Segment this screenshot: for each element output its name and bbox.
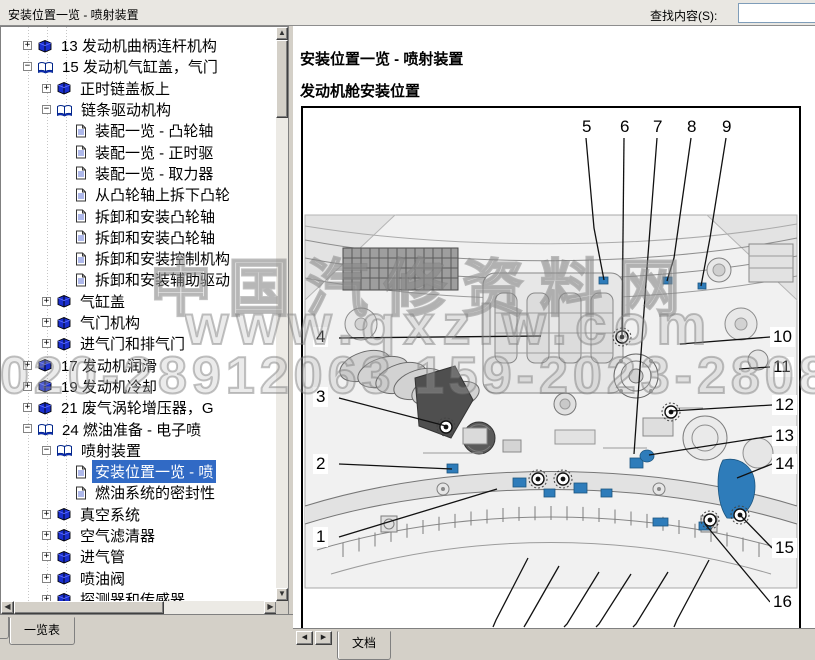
- collapse-minus-icon[interactable]: −: [42, 446, 51, 455]
- expand-plus-icon[interactable]: +: [42, 595, 51, 601]
- tree-item-label[interactable]: 装配一览 - 正时驱: [92, 141, 216, 164]
- tree-item[interactable]: 从凸轮轴上拆下凸轮: [1, 184, 277, 205]
- tree-item-label[interactable]: 拆卸和安装凸轮轴: [92, 226, 218, 249]
- scroll-left-icon[interactable]: ◀: [1, 601, 14, 614]
- book-open-icon: [37, 60, 54, 74]
- horizontal-scrollbar[interactable]: ◀ ▶: [1, 601, 277, 614]
- callout-7: 7: [650, 117, 665, 137]
- scroll-up-icon[interactable]: ▲: [276, 27, 288, 40]
- expand-plus-icon[interactable]: +: [23, 403, 32, 412]
- expand-plus-icon[interactable]: +: [23, 361, 32, 370]
- tree-item[interactable]: 装配一览 - 凸轮轴: [1, 120, 277, 141]
- tree-item[interactable]: +探测器和传感器: [1, 589, 277, 601]
- collapse-minus-icon[interactable]: −: [23, 62, 32, 71]
- expand-plus-icon[interactable]: +: [42, 339, 51, 348]
- expand-plus-icon[interactable]: +: [23, 382, 32, 391]
- book-closed-icon: [37, 379, 53, 393]
- tree-item[interactable]: +21 废气涡轮增压器，G: [1, 397, 277, 418]
- toc-tree[interactable]: +13 发动机曲柄连杆机构−15 发动机气缸盖，气门+正时链盖板上−链条驱动机构…: [1, 27, 277, 601]
- book-open-icon: [56, 103, 73, 117]
- tree-item-label[interactable]: 气缸盖: [77, 290, 128, 313]
- book-closed-icon: [56, 507, 72, 521]
- scrollbar-corner: [276, 601, 288, 614]
- expand-plus-icon[interactable]: +: [42, 318, 51, 327]
- tree-item[interactable]: 燃油系统的密封性: [1, 482, 277, 503]
- find-label: 查找内容(S):: [650, 7, 717, 24]
- tree-item-label[interactable]: 拆卸和安装控制机构: [92, 247, 233, 270]
- book-open-icon: [56, 443, 73, 457]
- tree-item[interactable]: +气门机构: [1, 312, 277, 333]
- scrollbar-thumb[interactable]: [14, 601, 164, 614]
- tree-item-label[interactable]: 探测器和传感器: [77, 588, 188, 601]
- tab-document[interactable]: 文档: [337, 631, 391, 660]
- book-closed-icon: [37, 401, 53, 415]
- tree-item[interactable]: +进气管: [1, 546, 277, 567]
- tree-item-label[interactable]: 15 发动机气缸盖，气门: [59, 55, 221, 78]
- callout-11: 11: [770, 357, 794, 377]
- tree-item[interactable]: −链条驱动机构: [1, 99, 277, 120]
- document-tab-bar: ◀ ▶ 文档: [293, 628, 815, 645]
- vertical-scrollbar[interactable]: ▲ ▼: [276, 27, 288, 601]
- tree-item-label[interactable]: 链条驱动机构: [78, 98, 174, 121]
- tree-item[interactable]: +气缸盖: [1, 291, 277, 312]
- page-icon: [75, 252, 87, 266]
- tree-item[interactable]: +17 发动机润滑: [1, 354, 277, 375]
- tree-item-label[interactable]: 空气滤清器: [77, 524, 158, 547]
- tab-document-label: 文档: [352, 636, 376, 650]
- callout-13: 13: [772, 426, 797, 446]
- tree-item-label[interactable]: 19 发动机冷却: [58, 375, 160, 398]
- callout-8: 8: [684, 117, 699, 137]
- tree-item[interactable]: +真空系统: [1, 504, 277, 525]
- collapse-minus-icon[interactable]: −: [23, 424, 32, 433]
- expand-plus-icon[interactable]: +: [42, 510, 51, 519]
- tab-overview-label: 一览表: [24, 623, 60, 637]
- tree-item-label[interactable]: 13 发动机曲柄连杆机构: [58, 34, 220, 57]
- engine-bay-figure: 12345678910111213141516: [301, 106, 801, 628]
- document-pane: 安装位置一览 - 喷射装置 发动机舱安装位置: [293, 26, 815, 628]
- book-closed-icon: [56, 571, 72, 585]
- tree-item-label[interactable]: 燃油系统的密封性: [92, 481, 218, 504]
- tab-overview[interactable]: 一览表: [9, 617, 75, 645]
- expand-plus-icon[interactable]: +: [42, 297, 51, 306]
- book-closed-icon: [56, 528, 72, 542]
- page-icon: [75, 145, 87, 159]
- callout-5: 5: [579, 117, 594, 137]
- page-icon: [75, 465, 87, 479]
- tree-item[interactable]: 拆卸和安装凸轮轴: [1, 227, 277, 248]
- tab-scroll-right-icon[interactable]: ▶: [315, 631, 332, 645]
- callout-14: 14: [772, 454, 797, 474]
- tree-item[interactable]: +13 发动机曲柄连杆机构: [1, 35, 277, 56]
- book-closed-icon: [56, 316, 72, 330]
- tree-item[interactable]: 装配一览 - 取力器: [1, 163, 277, 184]
- tree-item-label[interactable]: 真空系统: [77, 503, 143, 526]
- tree-item[interactable]: +喷油阀: [1, 567, 277, 588]
- book-closed-icon: [56, 592, 72, 601]
- scroll-down-icon[interactable]: ▼: [276, 588, 288, 601]
- toc-pane: +13 发动机曲柄连杆机构−15 发动机气缸盖，气门+正时链盖板上−链条驱动机构…: [0, 26, 289, 614]
- book-closed-icon: [56, 550, 72, 564]
- page-icon: [75, 166, 87, 180]
- tree-item-label[interactable]: 喷油阀: [77, 567, 128, 590]
- callout-12: 12: [772, 395, 797, 415]
- expand-plus-icon[interactable]: +: [42, 531, 51, 540]
- book-closed-icon: [37, 358, 53, 372]
- scrollbar-thumb[interactable]: [276, 40, 288, 118]
- tree-item-label[interactable]: 喷射装置: [78, 439, 144, 462]
- tree-item[interactable]: −喷射装置: [1, 440, 277, 461]
- page-title: 安装位置一览 - 喷射装置: [300, 48, 463, 69]
- collapse-minus-icon[interactable]: −: [42, 105, 51, 114]
- book-closed-icon: [56, 81, 72, 95]
- page-icon: [75, 188, 87, 202]
- page-icon: [75, 209, 87, 223]
- find-input[interactable]: [738, 3, 815, 23]
- tree-item-label[interactable]: 24 燃油准备 - 电子喷: [59, 418, 204, 441]
- callout-15: 15: [772, 538, 797, 558]
- window-title: 安装位置一览 - 喷射装置: [8, 6, 139, 23]
- section-title: 发动机舱安装位置: [300, 80, 420, 101]
- tree-item[interactable]: −24 燃油准备 - 电子喷: [1, 418, 277, 439]
- book-closed-icon: [37, 39, 53, 53]
- sidebar-tab-bar: 一览表: [0, 614, 293, 645]
- expand-plus-icon[interactable]: +: [42, 552, 51, 561]
- tree-item-label[interactable]: 从凸轮轴上拆下凸轮: [92, 183, 233, 206]
- page-icon: [75, 273, 87, 287]
- tree-item-label[interactable]: 拆卸和安装辅助驱动: [92, 268, 233, 291]
- callout-2: 2: [313, 454, 328, 474]
- tab-scroll-left-icon[interactable]: ◀: [296, 631, 313, 645]
- tree-item-label[interactable]: 安装位置一览 - 喷: [92, 460, 216, 483]
- expand-plus-icon[interactable]: +: [23, 41, 32, 50]
- tree-item-label[interactable]: 气门机构: [77, 311, 143, 334]
- tree-item[interactable]: 拆卸和安装凸轮轴: [1, 205, 277, 226]
- tree-item[interactable]: −15 发动机气缸盖，气门: [1, 56, 277, 77]
- engine-illustration: [303, 108, 799, 628]
- book-open-icon: [37, 422, 54, 436]
- tree-item[interactable]: 安装位置一览 - 喷: [1, 461, 277, 482]
- tree-item[interactable]: 拆卸和安装辅助驱动: [1, 269, 277, 290]
- tree-item[interactable]: +空气滤清器: [1, 525, 277, 546]
- expand-plus-icon[interactable]: +: [42, 84, 51, 93]
- tree-item[interactable]: +进气门和排气门: [1, 333, 277, 354]
- page-icon: [75, 486, 87, 500]
- page-icon: [75, 124, 87, 138]
- tree-item-label[interactable]: 进气门和排气门: [77, 332, 188, 355]
- tree-item-label[interactable]: 装配一览 - 凸轮轴: [92, 119, 216, 142]
- callout-4: 4: [313, 327, 328, 347]
- page-icon: [75, 230, 87, 244]
- book-closed-icon: [56, 337, 72, 351]
- expand-plus-icon[interactable]: +: [42, 574, 51, 583]
- callout-3: 3: [313, 387, 328, 407]
- callout-16: 16: [770, 592, 795, 612]
- tree-item[interactable]: +19 发动机冷却: [1, 376, 277, 397]
- callout-10: 10: [770, 327, 795, 347]
- callout-6: 6: [617, 117, 632, 137]
- tree-item-label[interactable]: 拆卸和安装凸轮轴: [92, 205, 218, 228]
- tree-item-label[interactable]: 装配一览 - 取力器: [92, 162, 216, 185]
- book-closed-icon: [56, 294, 72, 308]
- tree-item-label[interactable]: 21 废气涡轮增压器，G: [58, 396, 217, 419]
- tree-item[interactable]: +正时链盖板上: [1, 78, 277, 99]
- tree-item-label[interactable]: 进气管: [77, 545, 128, 568]
- callout-1: 1: [313, 527, 328, 547]
- tree-item-label[interactable]: 正时链盖板上: [77, 77, 173, 100]
- tree-item[interactable]: 拆卸和安装控制机构: [1, 248, 277, 269]
- title-bar: 安装位置一览 - 喷射装置 查找内容(S):: [0, 0, 815, 26]
- tab-stub: [0, 617, 9, 639]
- callout-9: 9: [719, 117, 734, 137]
- tree-item-label[interactable]: 17 发动机润滑: [58, 354, 160, 377]
- tree-item[interactable]: 装配一览 - 正时驱: [1, 141, 277, 162]
